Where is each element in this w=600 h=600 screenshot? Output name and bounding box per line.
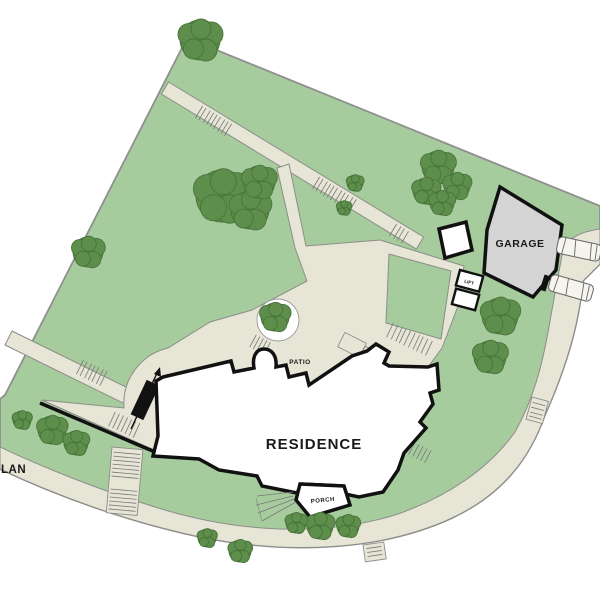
tree-icon: [178, 19, 223, 61]
tree-icon: [346, 175, 364, 192]
tree-icon: [241, 165, 277, 199]
tree-icon: [197, 529, 217, 548]
residence-label: RESIDENCE: [266, 436, 363, 453]
tree-icon: [228, 539, 253, 562]
stairs-to-road: [106, 447, 143, 515]
stairs-road-south-bump: [363, 542, 386, 562]
plan-title-partial: LAN: [1, 464, 26, 476]
outbuilding: [439, 222, 472, 258]
patio-label: PATIO: [289, 359, 310, 366]
tree-icon: [260, 302, 292, 331]
tree-icon: [63, 430, 90, 455]
tree-icon: [480, 297, 521, 335]
tree-icon: [72, 236, 106, 268]
site-plan-svg: LIFT GARAGE RESIDENCE PATIO PORCH LAN: [0, 0, 600, 600]
tree-icon: [429, 190, 456, 215]
tree-icon: [12, 411, 32, 430]
tree-icon: [336, 201, 352, 216]
tree-icon: [285, 513, 308, 534]
tree-icon: [306, 512, 335, 539]
garage-label: GARAGE: [495, 238, 544, 250]
tree-icon: [336, 514, 361, 537]
tree-icon: [472, 340, 508, 374]
